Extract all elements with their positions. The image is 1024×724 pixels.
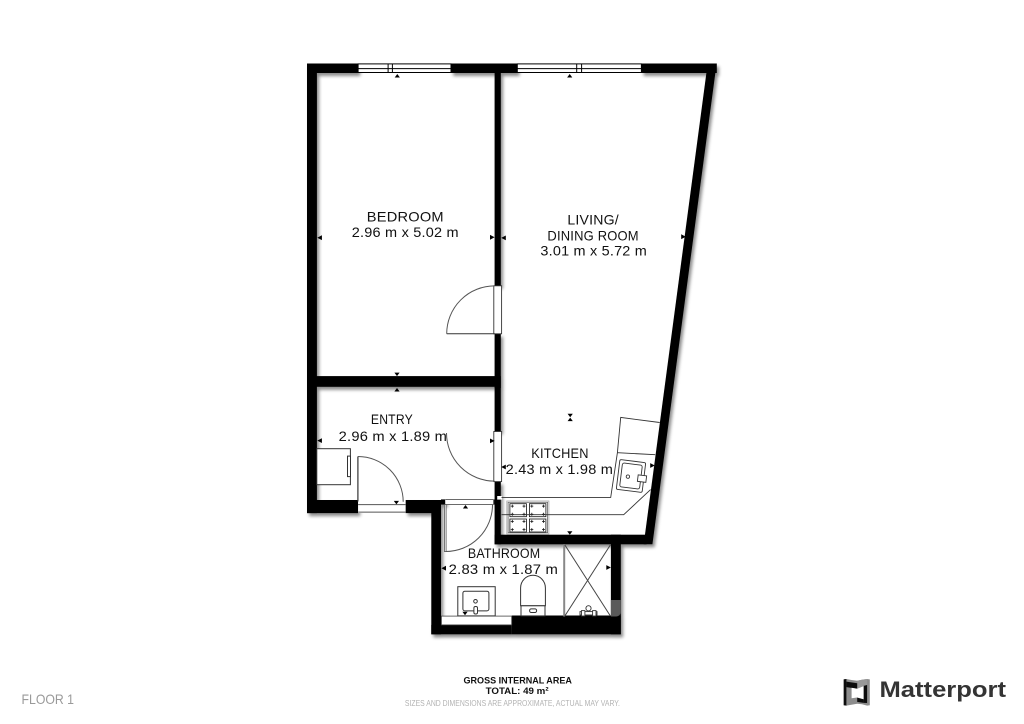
svg-text:LIVING/: LIVING/ (567, 213, 619, 228)
svg-text:2.83 m x 1.87 m: 2.83 m x 1.87 m (449, 562, 558, 577)
svg-text:2.96 m x 5.02 m: 2.96 m x 5.02 m (352, 225, 459, 240)
svg-text:DINING ROOM: DINING ROOM (547, 228, 638, 243)
svg-text:2.96 m x 1.89 m: 2.96 m x 1.89 m (339, 429, 447, 444)
svg-text:ENTRY: ENTRY (371, 412, 413, 427)
svg-text:TOTAL: 49 m²: TOTAL: 49 m² (486, 686, 549, 697)
svg-text:GROSS INTERNAL AREA: GROSS INTERNAL AREA (464, 676, 573, 687)
svg-text:FLOOR 1: FLOOR 1 (22, 691, 75, 707)
svg-text:SIZES AND DIMENSIONS ARE APPRO: SIZES AND DIMENSIONS ARE APPROXIMATE, AC… (405, 699, 620, 708)
svg-text:KITCHEN: KITCHEN (531, 446, 588, 461)
svg-text:BEDROOM: BEDROOM (367, 209, 444, 224)
svg-text:3.01 m x 5.72 m: 3.01 m x 5.72 m (540, 243, 647, 258)
svg-text:Matterport: Matterport (880, 677, 1007, 702)
svg-text:2.43 m x 1.98 m: 2.43 m x 1.98 m (506, 462, 613, 477)
svg-text:BATHROOM: BATHROOM (468, 546, 540, 561)
